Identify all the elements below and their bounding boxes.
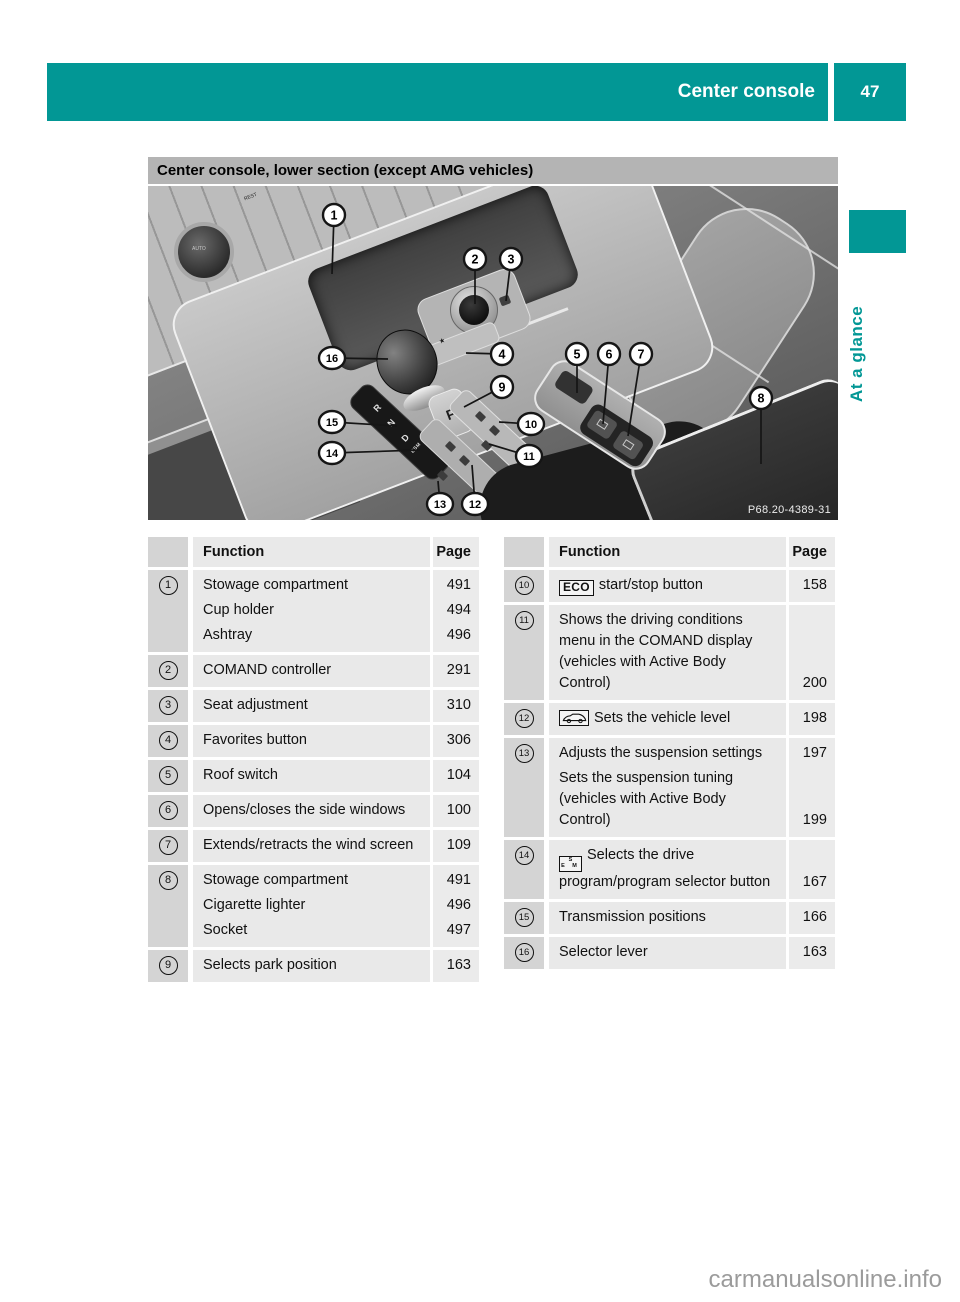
- table-row: 1Stowage compartment491Cup holder494Asht…: [148, 570, 479, 652]
- svg-text:1: 1: [331, 209, 338, 223]
- circled-number: 2: [159, 661, 178, 680]
- function-entry: ECOstart/stop button158: [549, 570, 835, 602]
- callout-number-cell: 7: [148, 830, 188, 862]
- svg-text:11: 11: [523, 451, 535, 463]
- symbol-column-header: [504, 537, 544, 567]
- circled-number: 3: [159, 696, 178, 715]
- callout-6: 6: [598, 343, 620, 365]
- row-entries: Transmission positions166: [549, 902, 835, 934]
- callout-number-cell: 4: [148, 725, 188, 757]
- table-row: 15Transmission positions166: [504, 902, 835, 934]
- table-row: 14SE MSelects the drive program/program …: [504, 840, 835, 899]
- function-text: Roof switch: [193, 760, 430, 792]
- page-reference: 197: [786, 738, 835, 766]
- table-header-row: FunctionPage: [148, 537, 479, 567]
- callout-7: 7: [630, 343, 652, 365]
- callout-number-cell: 5: [148, 760, 188, 792]
- page-reference: 100: [430, 795, 479, 827]
- header-section-title: Center console: [678, 81, 815, 103]
- page-reference: 104: [430, 760, 479, 792]
- row-entries: Stowage compartment491Cup holder494Ashtr…: [193, 570, 479, 652]
- function-entry: Selector lever163: [549, 937, 835, 969]
- svg-text:6: 6: [606, 348, 613, 362]
- function-text: Opens/closes the side windows: [193, 795, 430, 827]
- function-entry: Ashtray496: [193, 623, 479, 652]
- page-reference: 167: [786, 840, 835, 899]
- callout-4: 4: [491, 343, 513, 365]
- header-page-number: 47: [861, 82, 880, 102]
- page-reference: 496: [430, 623, 479, 652]
- row-entries: SE MSelects the drive program/program se…: [549, 840, 835, 899]
- table-header-row: FunctionPage: [504, 537, 835, 567]
- callout-number-cell: 12: [504, 703, 544, 735]
- row-entries: Sets the vehicle level198: [549, 703, 835, 735]
- callout-12: 12: [462, 493, 488, 515]
- function-entry: Stowage compartment491: [193, 570, 479, 598]
- function-text: Selector lever: [549, 937, 786, 969]
- row-entries: Shows the driving conditions menu in the…: [549, 605, 835, 700]
- callout-3: 3: [500, 248, 522, 270]
- page-reference: 306: [430, 725, 479, 757]
- circled-number: 6: [159, 801, 178, 820]
- drive-program-icon: SE M: [559, 856, 582, 872]
- page-reference: 497: [430, 918, 479, 947]
- function-entry: Sets the suspension tuning (vehicles wit…: [549, 766, 835, 837]
- callout-10: 10: [518, 413, 544, 435]
- callout-line: [628, 354, 641, 436]
- callout-14: 14: [319, 442, 345, 464]
- function-entry: Adjusts the suspension settings197: [549, 738, 835, 766]
- page-reference: 494: [430, 598, 479, 623]
- svg-text:4: 4: [499, 348, 506, 362]
- callout-overlay: 12345678910111213141516: [148, 186, 838, 520]
- page-reference: 491: [430, 570, 479, 598]
- function-text: Favorites button: [193, 725, 430, 757]
- table-row: 10ECOstart/stop button158: [504, 570, 835, 602]
- page-reference: 163: [430, 950, 479, 982]
- svg-text:14: 14: [326, 448, 339, 460]
- svg-text:10: 10: [525, 419, 537, 431]
- eco-start-stop-icon: ECO: [559, 580, 594, 596]
- callout-15: 15: [319, 411, 345, 433]
- circled-number: 7: [159, 836, 178, 855]
- function-entry: Seat adjustment310: [193, 690, 479, 722]
- header-section-box: Center console: [47, 63, 828, 121]
- svg-text:9: 9: [499, 381, 506, 395]
- row-entries: COMAND controller291: [193, 655, 479, 687]
- callout-13: 13: [427, 493, 453, 515]
- page-header: Center console 47: [47, 63, 906, 121]
- function-table-left: FunctionPage1Stowage compartment491Cup h…: [148, 537, 479, 985]
- table-row: 2COMAND controller291: [148, 655, 479, 687]
- function-text: Selects park position: [193, 950, 430, 982]
- function-text: Shows the driving conditions menu in the…: [549, 605, 786, 700]
- header-page-box: 47: [834, 63, 906, 121]
- function-text: Sets the vehicle level: [549, 703, 786, 735]
- page-reference: 158: [786, 570, 835, 602]
- section-heading: Center console, lower section (except AM…: [148, 157, 838, 184]
- function-entry: COMAND controller291: [193, 655, 479, 687]
- callout-number-cell: 16: [504, 937, 544, 969]
- page-reference: 496: [430, 893, 479, 918]
- svg-text:5: 5: [574, 348, 581, 362]
- callout-1: 1: [323, 204, 345, 226]
- callout-number-cell: 9: [148, 950, 188, 982]
- function-entry: Selects park position163: [193, 950, 479, 982]
- callout-number-cell: 13: [504, 738, 544, 837]
- row-entries: Stowage compartment491Cigarette lighter4…: [193, 865, 479, 947]
- circled-number: 4: [159, 731, 178, 750]
- watermark: carmanualsonline.info: [709, 1266, 942, 1294]
- svg-text:2: 2: [472, 253, 479, 267]
- circled-number: 13: [515, 744, 534, 763]
- function-text: Stowage compartment: [193, 865, 430, 893]
- function-column-header: Function: [193, 537, 430, 567]
- function-text: Stowage compartment: [193, 570, 430, 598]
- page-reference: 109: [430, 830, 479, 862]
- symbol-column-header: [148, 537, 188, 567]
- function-entry: Roof switch104: [193, 760, 479, 792]
- callout-9: 9: [491, 376, 513, 398]
- page-reference: 200: [786, 605, 835, 700]
- callout-number-cell: 14: [504, 840, 544, 899]
- function-text: Cup holder: [193, 598, 430, 623]
- function-entry: Sets the vehicle level198: [549, 703, 835, 735]
- chapter-tab-marker: [849, 210, 906, 253]
- row-entries: Opens/closes the side windows100: [193, 795, 479, 827]
- table-row: 6Opens/closes the side windows100: [148, 795, 479, 827]
- function-entry: Shows the driving conditions menu in the…: [549, 605, 835, 700]
- circled-number: 16: [515, 943, 534, 962]
- row-entries: Extends/retracts the wind screen109: [193, 830, 479, 862]
- function-text: Cigarette lighter: [193, 893, 430, 918]
- row-entries: Roof switch104: [193, 760, 479, 792]
- callout-16: 16: [319, 347, 345, 369]
- row-entries: Selects park position163: [193, 950, 479, 982]
- function-entry: SE MSelects the drive program/program se…: [549, 840, 835, 899]
- callout-number-cell: 10: [504, 570, 544, 602]
- callout-11: 11: [516, 445, 542, 467]
- row-entries: Seat adjustment310: [193, 690, 479, 722]
- page-column-header: Page: [786, 537, 835, 567]
- callout-5: 5: [566, 343, 588, 365]
- svg-text:12: 12: [469, 499, 481, 511]
- table-row: 11Shows the driving conditions menu in t…: [504, 605, 835, 700]
- function-text: ECOstart/stop button: [549, 570, 786, 602]
- table-row: 3Seat adjustment310: [148, 690, 479, 722]
- table-row: 5Roof switch104: [148, 760, 479, 792]
- page-reference: 291: [430, 655, 479, 687]
- function-entry: Socket497: [193, 918, 479, 947]
- figure-code: P68.20-4389-31: [748, 504, 831, 516]
- callout-2: 2: [464, 248, 486, 270]
- function-text: Transmission positions: [549, 902, 786, 934]
- svg-text:13: 13: [434, 499, 446, 511]
- table-row: 4Favorites button306: [148, 725, 479, 757]
- function-entry: Opens/closes the side windows100: [193, 795, 479, 827]
- function-text: Socket: [193, 918, 430, 947]
- callout-number-cell: 1: [148, 570, 188, 652]
- function-text: Ashtray: [193, 623, 430, 652]
- callout-number-cell: 6: [148, 795, 188, 827]
- page-column-header: Page: [430, 537, 479, 567]
- circled-number: 5: [159, 766, 178, 785]
- row-entries: Adjusts the suspension settings197Sets t…: [549, 738, 835, 837]
- function-text: SE MSelects the drive program/program se…: [549, 840, 786, 899]
- callout-number-cell: 15: [504, 902, 544, 934]
- callout-number-cell: 8: [148, 865, 188, 947]
- function-entry: Cup holder494: [193, 598, 479, 623]
- circled-number: 10: [515, 576, 534, 595]
- row-entries: Selector lever163: [549, 937, 835, 969]
- function-text: COMAND controller: [193, 655, 430, 687]
- circled-number: 12: [515, 709, 534, 728]
- console-photo-figure: AUTO REST ★ RNDESM P: [148, 186, 838, 520]
- row-entries: Favorites button306: [193, 725, 479, 757]
- table-row: 9Selects park position163: [148, 950, 479, 982]
- table-row: 13Adjusts the suspension settings197Sets…: [504, 738, 835, 837]
- function-table-right: FunctionPage10ECOstart/stop button15811S…: [504, 537, 835, 972]
- svg-text:3: 3: [508, 253, 515, 267]
- page-reference: 199: [786, 766, 835, 837]
- page-reference: 491: [430, 865, 479, 893]
- callout-8: 8: [750, 387, 772, 409]
- circled-number: 9: [159, 956, 178, 975]
- circled-number: 1: [159, 576, 178, 595]
- callout-number-cell: 2: [148, 655, 188, 687]
- function-entry: Stowage compartment491: [193, 865, 479, 893]
- table-row: 16Selector lever163: [504, 937, 835, 969]
- svg-text:7: 7: [638, 348, 645, 362]
- vehicle-level-icon: [559, 710, 589, 726]
- table-row: 7Extends/retracts the wind screen109: [148, 830, 479, 862]
- function-text: Extends/retracts the wind screen: [193, 830, 430, 862]
- table-row: 8Stowage compartment491Cigarette lighter…: [148, 865, 479, 947]
- manual-page: Center console 47 At a glance Center con…: [0, 0, 960, 1302]
- function-entry: Transmission positions166: [549, 902, 835, 934]
- circled-number: 15: [515, 908, 534, 927]
- callout-number-cell: 11: [504, 605, 544, 700]
- page-reference: 310: [430, 690, 479, 722]
- svg-text:8: 8: [758, 392, 765, 406]
- function-text: Adjusts the suspension settings: [549, 738, 786, 766]
- callout-number-cell: 3: [148, 690, 188, 722]
- svg-text:15: 15: [326, 417, 338, 429]
- table-row: 12Sets the vehicle level198: [504, 703, 835, 735]
- function-text: Seat adjustment: [193, 690, 430, 722]
- chapter-tab-label: At a glance: [847, 262, 875, 402]
- function-entry: Cigarette lighter496: [193, 893, 479, 918]
- circled-number: 14: [515, 846, 534, 865]
- function-entry: Extends/retracts the wind screen109: [193, 830, 479, 862]
- page-reference: 163: [786, 937, 835, 969]
- circled-number: 11: [515, 611, 534, 630]
- function-entry: Favorites button306: [193, 725, 479, 757]
- function-text: Sets the suspension tuning (vehicles wit…: [549, 766, 786, 837]
- circled-number: 8: [159, 871, 178, 890]
- row-entries: ECOstart/stop button158: [549, 570, 835, 602]
- svg-text:16: 16: [326, 353, 338, 365]
- function-column-header: Function: [549, 537, 786, 567]
- page-reference: 198: [786, 703, 835, 735]
- page-reference: 166: [786, 902, 835, 934]
